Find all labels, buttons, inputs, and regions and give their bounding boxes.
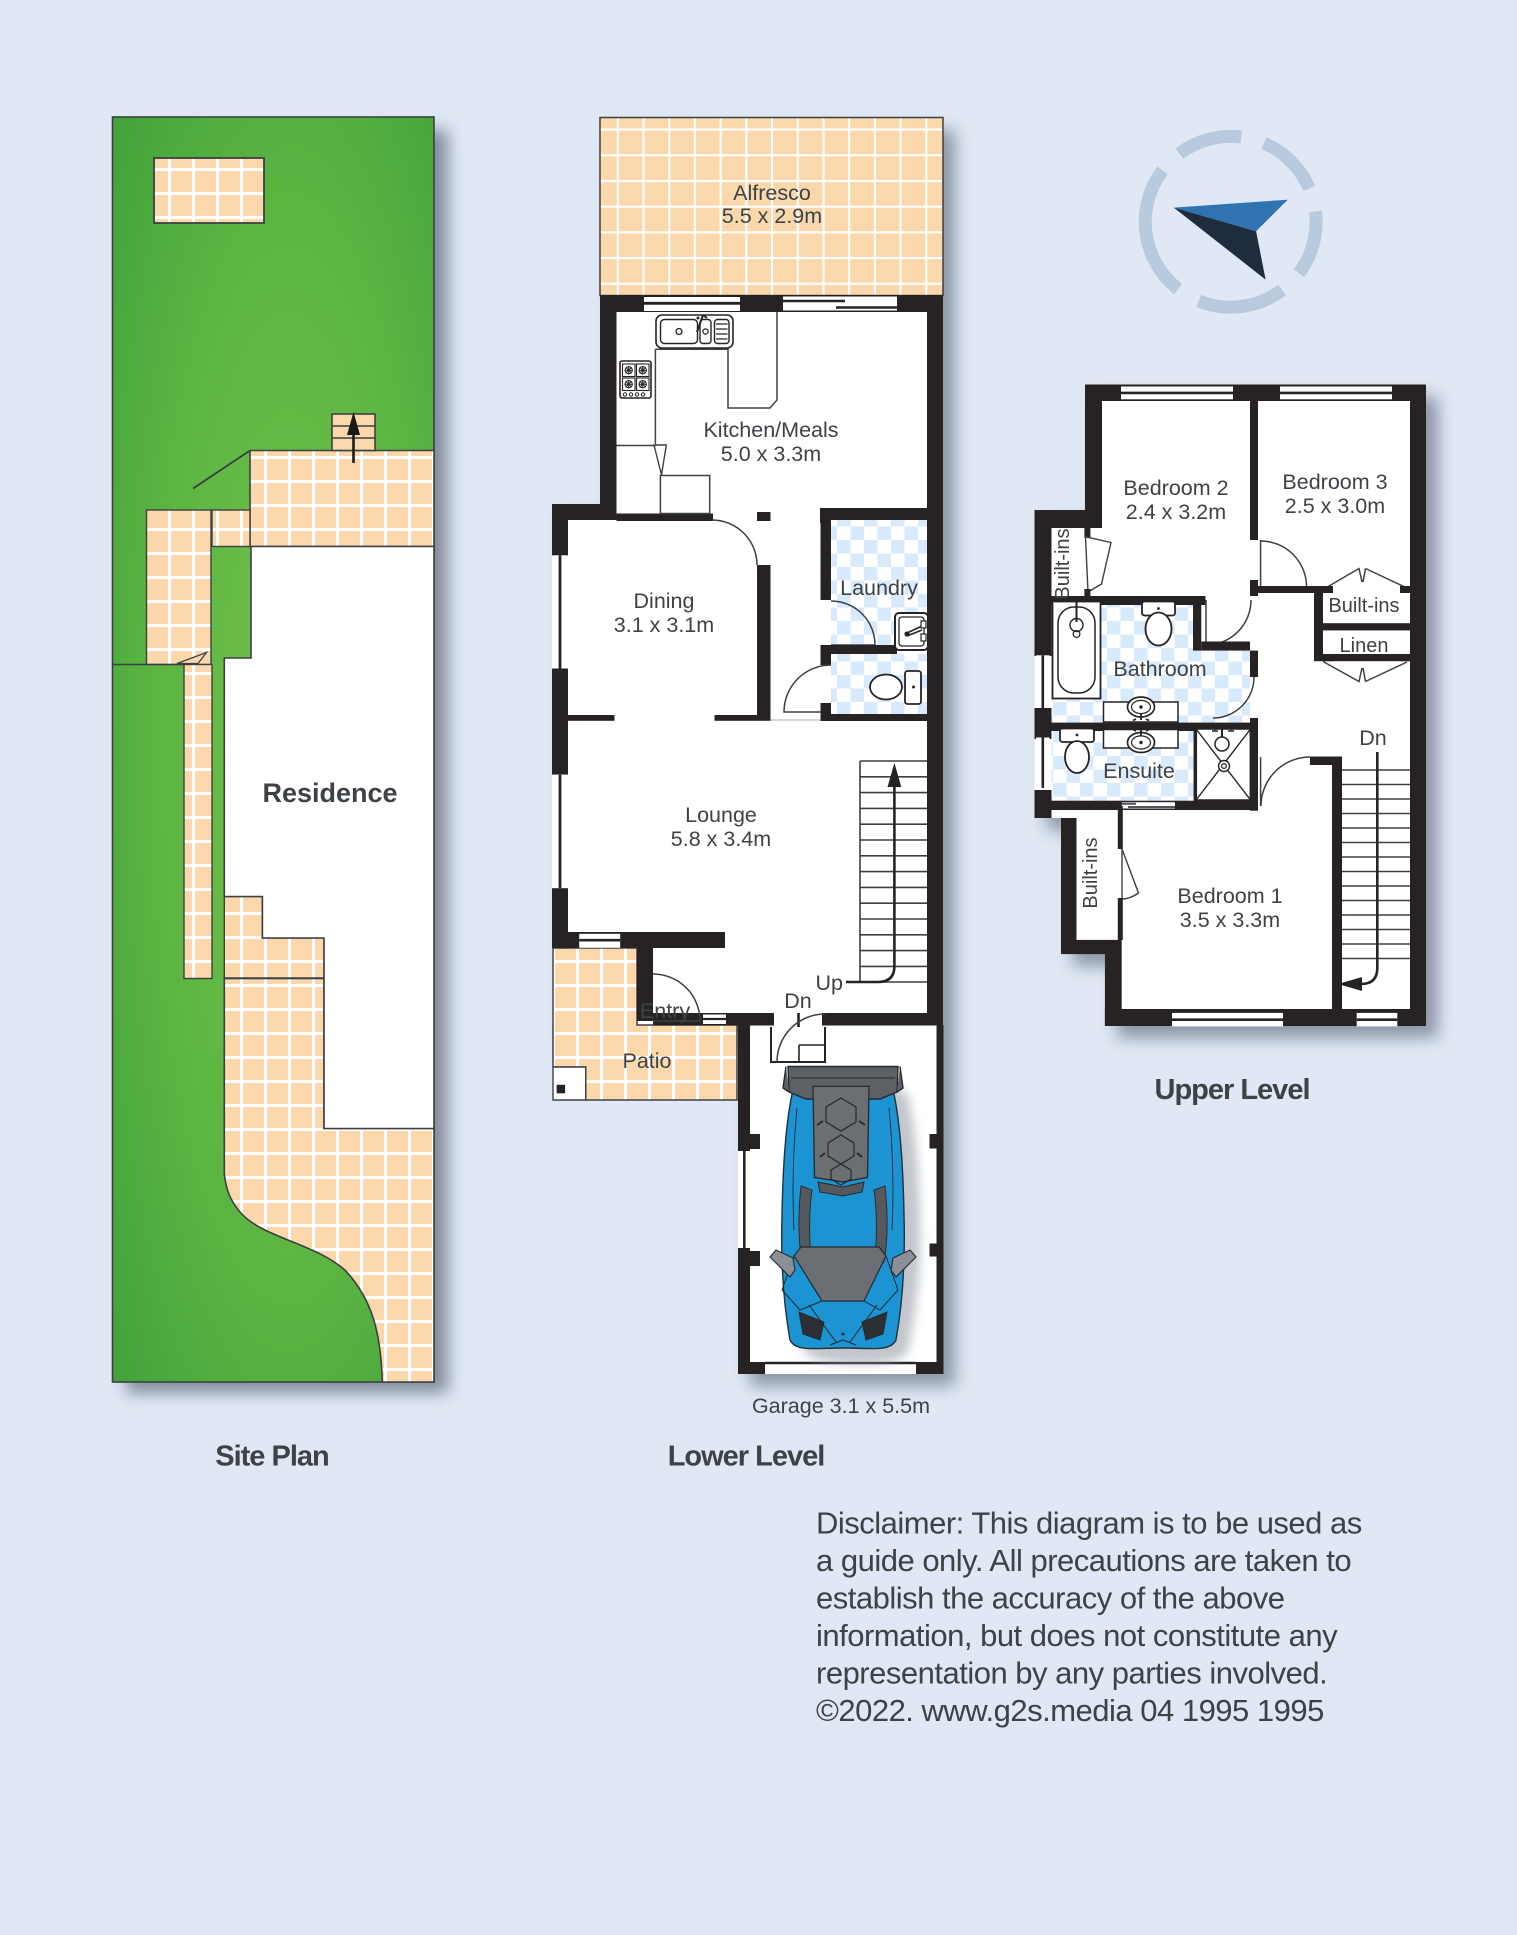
svg-text:representation by any parties: representation by any parties involved.: [816, 1656, 1327, 1691]
svg-text:information, but does not cons: information, but does not constitute any: [816, 1618, 1338, 1653]
svg-text:Built-ins: Built-ins: [1052, 528, 1074, 599]
svg-text:3.5 x 3.3m: 3.5 x 3.3m: [1180, 908, 1280, 932]
svg-text:Garage 3.1 x 5.5m: Garage 3.1 x 5.5m: [752, 1394, 930, 1418]
svg-text:Bedroom 3: Bedroom 3: [1282, 470, 1387, 494]
svg-text:Up: Up: [816, 971, 844, 995]
svg-text:5.5 x 2.9m: 5.5 x 2.9m: [722, 204, 822, 228]
svg-text:Patio: Patio: [622, 1049, 671, 1073]
svg-text:3.1 x 3.1m: 3.1 x 3.1m: [614, 613, 714, 637]
svg-text:Lower Level: Lower Level: [668, 1441, 825, 1473]
svg-text:Disclaimer: This diagram is to: Disclaimer: This diagram is to be used a…: [816, 1506, 1362, 1541]
svg-text:5.8 x 3.4m: 5.8 x 3.4m: [671, 827, 771, 851]
svg-text:Dining: Dining: [634, 589, 695, 613]
svg-text:Built-ins: Built-ins: [1080, 837, 1102, 908]
svg-text:Upper Level: Upper Level: [1155, 1074, 1310, 1106]
svg-text:establish the accuracy of the: establish the accuracy of the above: [816, 1581, 1284, 1616]
svg-text:Residence: Residence: [262, 778, 397, 808]
svg-text:Bedroom 2: Bedroom 2: [1123, 476, 1228, 500]
svg-text:©2022. www.g2s.media 04 1995 1: ©2022. www.g2s.media 04 1995 1995: [816, 1693, 1324, 1728]
svg-text:Bedroom 1: Bedroom 1: [1177, 884, 1282, 908]
svg-text:Built-ins: Built-ins: [1328, 595, 1399, 617]
svg-text:Bathroom: Bathroom: [1113, 657, 1206, 681]
svg-text:a guide only. All precautions: a guide only. All precautions are taken …: [816, 1543, 1351, 1578]
svg-text:Laundry: Laundry: [840, 576, 918, 600]
svg-text:Ensuite: Ensuite: [1103, 759, 1175, 783]
svg-text:Alfresco: Alfresco: [733, 181, 811, 205]
svg-text:Dn: Dn: [1359, 726, 1386, 750]
svg-text:5.0 x 3.3m: 5.0 x 3.3m: [721, 442, 821, 466]
svg-text:2.5 x 3.0m: 2.5 x 3.0m: [1285, 494, 1385, 518]
svg-text:Site Plan: Site Plan: [215, 1441, 329, 1473]
svg-text:2.4 x 3.2m: 2.4 x 3.2m: [1126, 500, 1226, 524]
svg-text:Dn: Dn: [784, 989, 811, 1013]
svg-text:Entry: Entry: [640, 999, 690, 1023]
svg-text:Linen: Linen: [1340, 635, 1389, 657]
svg-text:Lounge: Lounge: [685, 803, 757, 827]
svg-text:Kitchen/Meals: Kitchen/Meals: [703, 418, 838, 442]
